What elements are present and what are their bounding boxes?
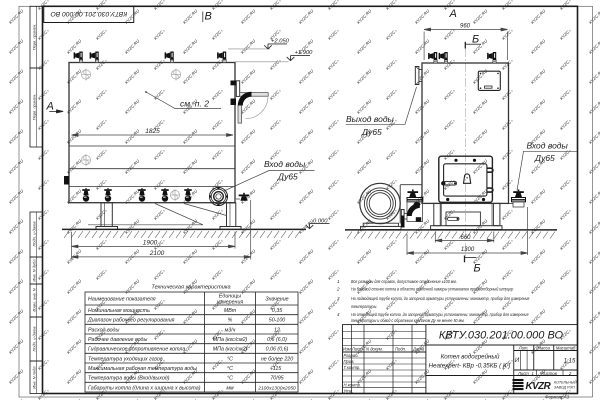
svg-text:Номинальная мощность: Номинальная мощность [88,308,150,314]
svg-text:МПа (кгс/см2): МПа (кгс/см2) [213,347,248,353]
svg-text:50-100: 50-100 [269,318,286,324]
svg-text:Н.контр.: Н.контр. [344,383,362,388]
svg-text:Температура уходящих газов: Температура уходящих газов [88,356,163,362]
svg-text:Инв. N подл.: Инв. N подл. [31,365,36,388]
svg-text:+2.050: +2.050 [271,39,290,45]
svg-text:%: % [228,318,233,324]
svg-text:Б: Б [472,34,479,46]
svg-text:Ду65: Ду65 [534,153,555,163]
svg-text:На боковой стенке котла в обла: На боковой стенке котла в области топочн… [351,286,514,292]
svg-text:1300: 1300 [461,247,475,253]
svg-text:+1.900: +1.900 [295,50,314,56]
svg-text:Пров.: Пров. [344,359,355,364]
svg-text:70/95: 70/95 [270,376,283,382]
svg-text:°С: °С [227,376,233,382]
svg-text:1:15: 1:15 [564,359,576,365]
svg-text:Разраб.: Разраб. [344,353,359,358]
svg-text:КВТУ.030.201.00.000 ВО: КВТУ.030.201.00.000 ВО [439,329,564,341]
svg-text:А: А [46,101,54,113]
svg-text:И: И [515,358,520,364]
svg-text:Перв. примен.: Перв. примен. [31,24,36,51]
svg-text:м3/ч: м3/ч [225,327,236,333]
svg-text:Б: Б [474,263,481,275]
svg-text:Значение: Значение [265,297,288,303]
svg-text:Вход воды: Вход воды [264,159,306,169]
svg-text:Листов: Листов [541,371,558,376]
svg-text:2100х1300х2050: 2100х1300х2050 [257,385,296,391]
svg-text:МВт: МВт [224,308,237,314]
svg-text:Все размеры для справок, допус: Все размеры для справок, допустимое откл… [351,278,457,284]
svg-text:Гидравлическое сопротивление к: Гидравлическое сопротивление котла [88,347,185,353]
svg-text:см. п. 2: см. п. 2 [180,99,209,109]
svg-text:Т.контр.: Т.контр. [344,365,361,370]
svg-text:960: 960 [460,24,471,30]
svg-text:Ду65: Ду65 [361,127,382,137]
svg-text:1: 1 [532,371,534,376]
svg-text:Инв. N дубл.: Инв. N дубл. [31,258,36,281]
svg-text:0,06 (0,6): 0,06 (0,6) [266,347,289,353]
svg-text:МПа (кгс/см2): МПа (кгс/см2) [213,337,248,343]
svg-text:Ду65: Ду65 [277,172,298,182]
svg-text:Вход воды: Вход воды [527,141,569,151]
svg-text:Масса: Масса [538,345,551,350]
svg-text:Температура воды (Вход/выход): Температура воды (Вход/выход) [88,376,170,382]
svg-text:2100: 2100 [149,250,165,257]
svg-text:0,6 (6,0): 0,6 (6,0) [267,337,287,343]
svg-text:измерения: измерения [217,300,244,306]
svg-text:не более 220: не более 220 [261,356,293,362]
svg-text:Подп. и дата: Подп. и дата [31,221,36,247]
svg-text:Техническая характеристика: Техническая характеристика [151,285,230,291]
svg-text:Максимальная рабочая температу: Максимальная рабочая температура воды [88,366,197,372]
svg-text:температуры и обвод с обратным: температуры и обвод с обратным клапаном … [351,317,465,323]
svg-text:Выход воды: Выход воды [346,114,395,124]
svg-text:Дата: Дата [412,347,425,352]
svg-text:Наименование показателя: Наименование показателя [88,297,156,303]
svg-text:Лист: Лист [517,371,529,376]
svg-text:660: 660 [460,235,471,241]
svg-text:°С: °С [227,366,233,372]
svg-text:Лит.: Лит. [518,345,529,350]
svg-text:0,35: 0,35 [272,308,282,314]
svg-text:В: В [205,11,212,23]
svg-text:КОТЕЛЬНЫЙ: КОТЕЛЬНЫЙ [554,381,577,385]
svg-text:Перв. примен.: Перв. примен. [31,94,36,121]
svg-text:Масштаб: Масштаб [556,345,576,350]
svg-text:Heatexpert- КВр -0,35КБ ( К ): Heatexpert- КВр -0,35КБ ( К ) [429,363,511,370]
svg-text:Подп. и дата: Подп. и дата [31,326,36,352]
svg-text:°С: °С [227,356,233,362]
svg-text:На отводящей трубе котла ,до з: На отводящей трубе котла ,до запорной ар… [351,312,529,318]
svg-text:Котел водогрейный: Котел водогрейный [441,354,500,361]
svg-text:мм: мм [226,385,234,391]
svg-text:На подводящей трубе котла, до: На подводящей трубе котла, до запорной а… [351,296,530,302]
svg-text:Рабочее давление воды: Рабочее давление воды [88,337,147,343]
svg-text:ЗАВОД РЭП: ЗАВОД РЭП [554,386,575,390]
svg-text:Изм.Лист: Изм.Лист [343,347,363,352]
svg-text:N докум.: N докум. [366,347,383,352]
svg-text:12: 12 [274,327,280,333]
svg-text:Утв.: Утв. [344,388,354,393]
svg-text:КВТУ.030.201.00.000 ВО: КВТУ.030.201.00.000 ВО [50,10,127,17]
svg-text:температуры.: температуры. [351,304,377,310]
svg-text:KVZR: KVZR [526,381,552,392]
svg-text:115: 115 [273,366,281,372]
svg-text:Взам. инв. N: Взам. инв. N [31,288,36,311]
svg-text:0.000: 0.000 [313,218,328,224]
svg-text:Подп.: Подп. [395,347,406,352]
svg-text:Диапазон рабочего регулировани: Диапазон рабочего регулирования [87,318,175,324]
svg-text:2: 2 [336,287,340,292]
svg-text:1900: 1900 [143,239,158,246]
svg-text:Формат А3: Формат А3 [545,395,570,400]
svg-text:Расход воды: Расход воды [88,327,119,333]
svg-text:Габариты котла (длина х ширина: Габариты котла (длина х ширина х высота) [88,385,201,391]
svg-text:А: А [449,8,457,20]
svg-text:1825: 1825 [145,128,160,135]
